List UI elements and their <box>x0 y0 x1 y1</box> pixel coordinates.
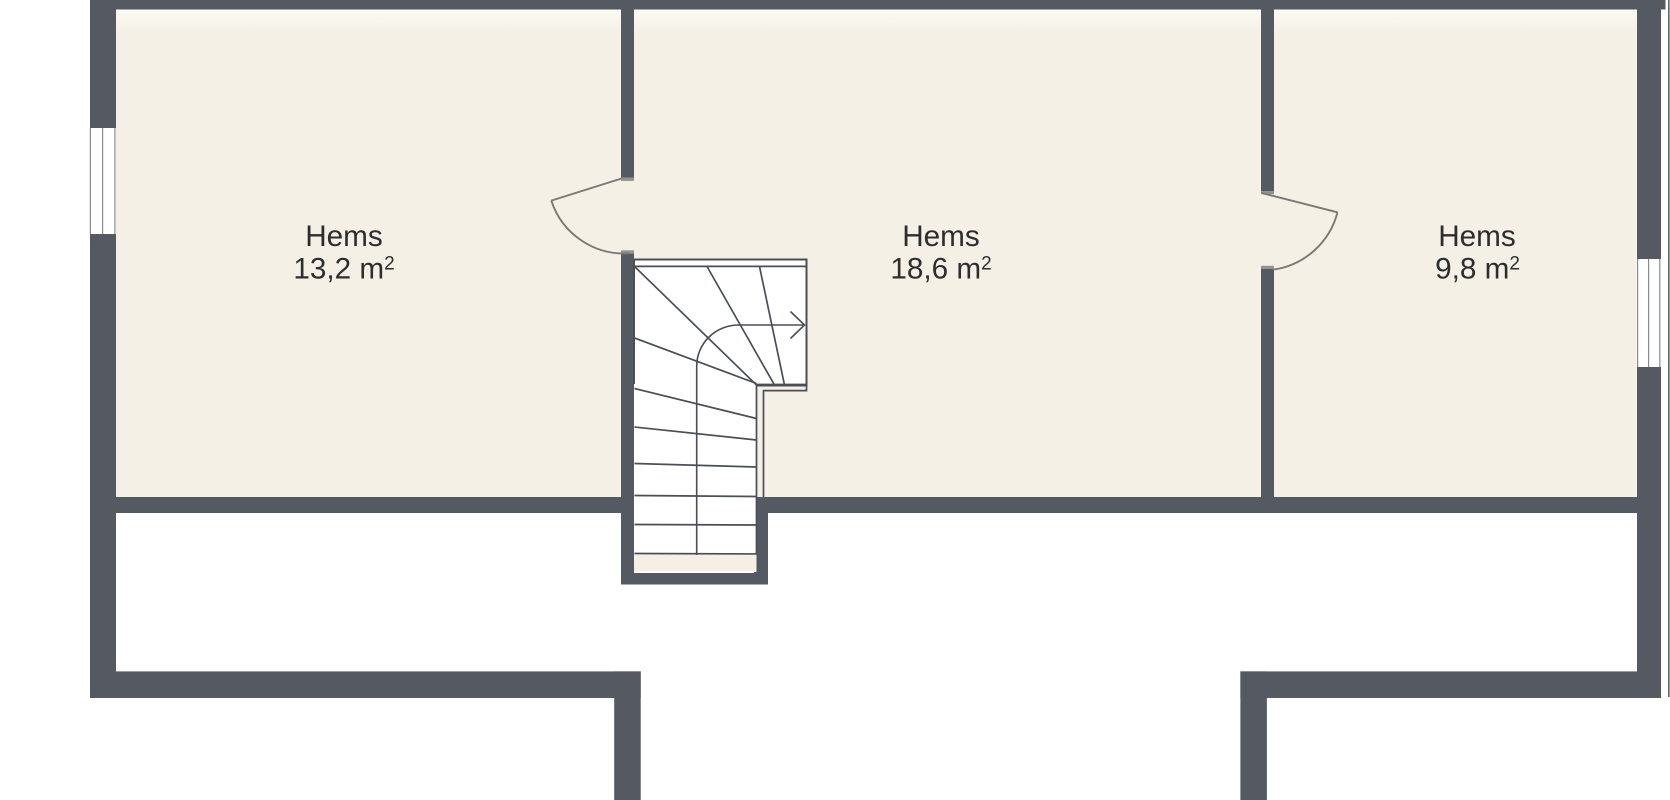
svg-text:13,2 m2: 13,2 m2 <box>293 253 394 286</box>
svg-text:Hems: Hems <box>902 220 980 253</box>
svg-text:Hems: Hems <box>1438 220 1516 253</box>
svg-text:Hems: Hems <box>305 220 383 253</box>
svg-text:9,8 m2: 9,8 m2 <box>1435 253 1520 286</box>
svg-text:18,6 m2: 18,6 m2 <box>890 253 991 286</box>
